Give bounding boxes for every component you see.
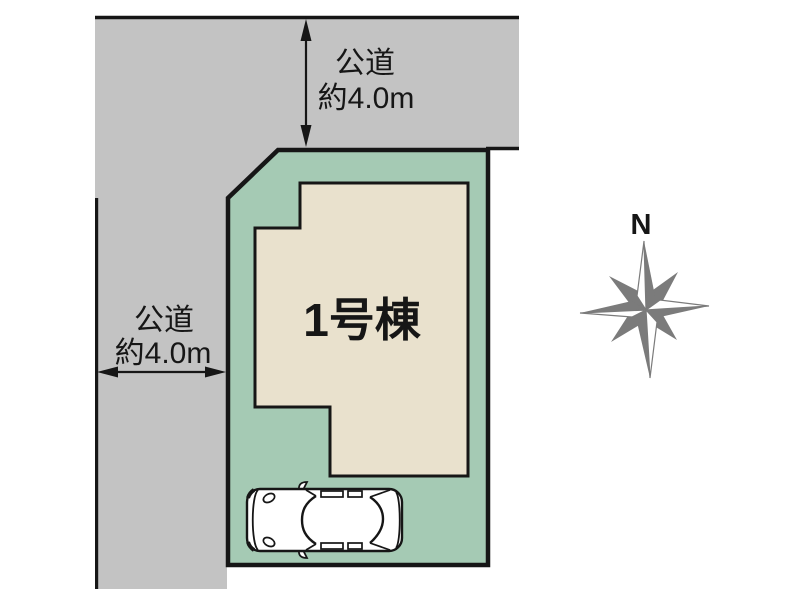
car-window-front-bottom bbox=[321, 543, 343, 549]
building-label: 1号棟 bbox=[303, 294, 422, 346]
top-road-label-line1: 公道 bbox=[335, 47, 395, 80]
car-top-view bbox=[247, 482, 402, 558]
car-window-rear-bottom bbox=[348, 543, 362, 549]
left-road-label-line2: 約4.0m bbox=[115, 337, 212, 370]
left-road-label-line1: 公道 bbox=[134, 304, 194, 337]
top-road-label-line2: 約4.0m bbox=[318, 82, 415, 115]
plot-layout-diagram: 1号棟 公道 約4.0m 公道 約4.0m bbox=[0, 0, 800, 600]
car-window-rear-top bbox=[348, 491, 362, 497]
compass-north-label: N bbox=[631, 209, 652, 241]
diagram-canvas: 1号棟 公道 約4.0m 公道 約4.0m bbox=[0, 0, 800, 600]
car-window-front-top bbox=[321, 491, 343, 497]
compass-rose: N bbox=[580, 209, 709, 378]
compass-star bbox=[580, 241, 709, 378]
